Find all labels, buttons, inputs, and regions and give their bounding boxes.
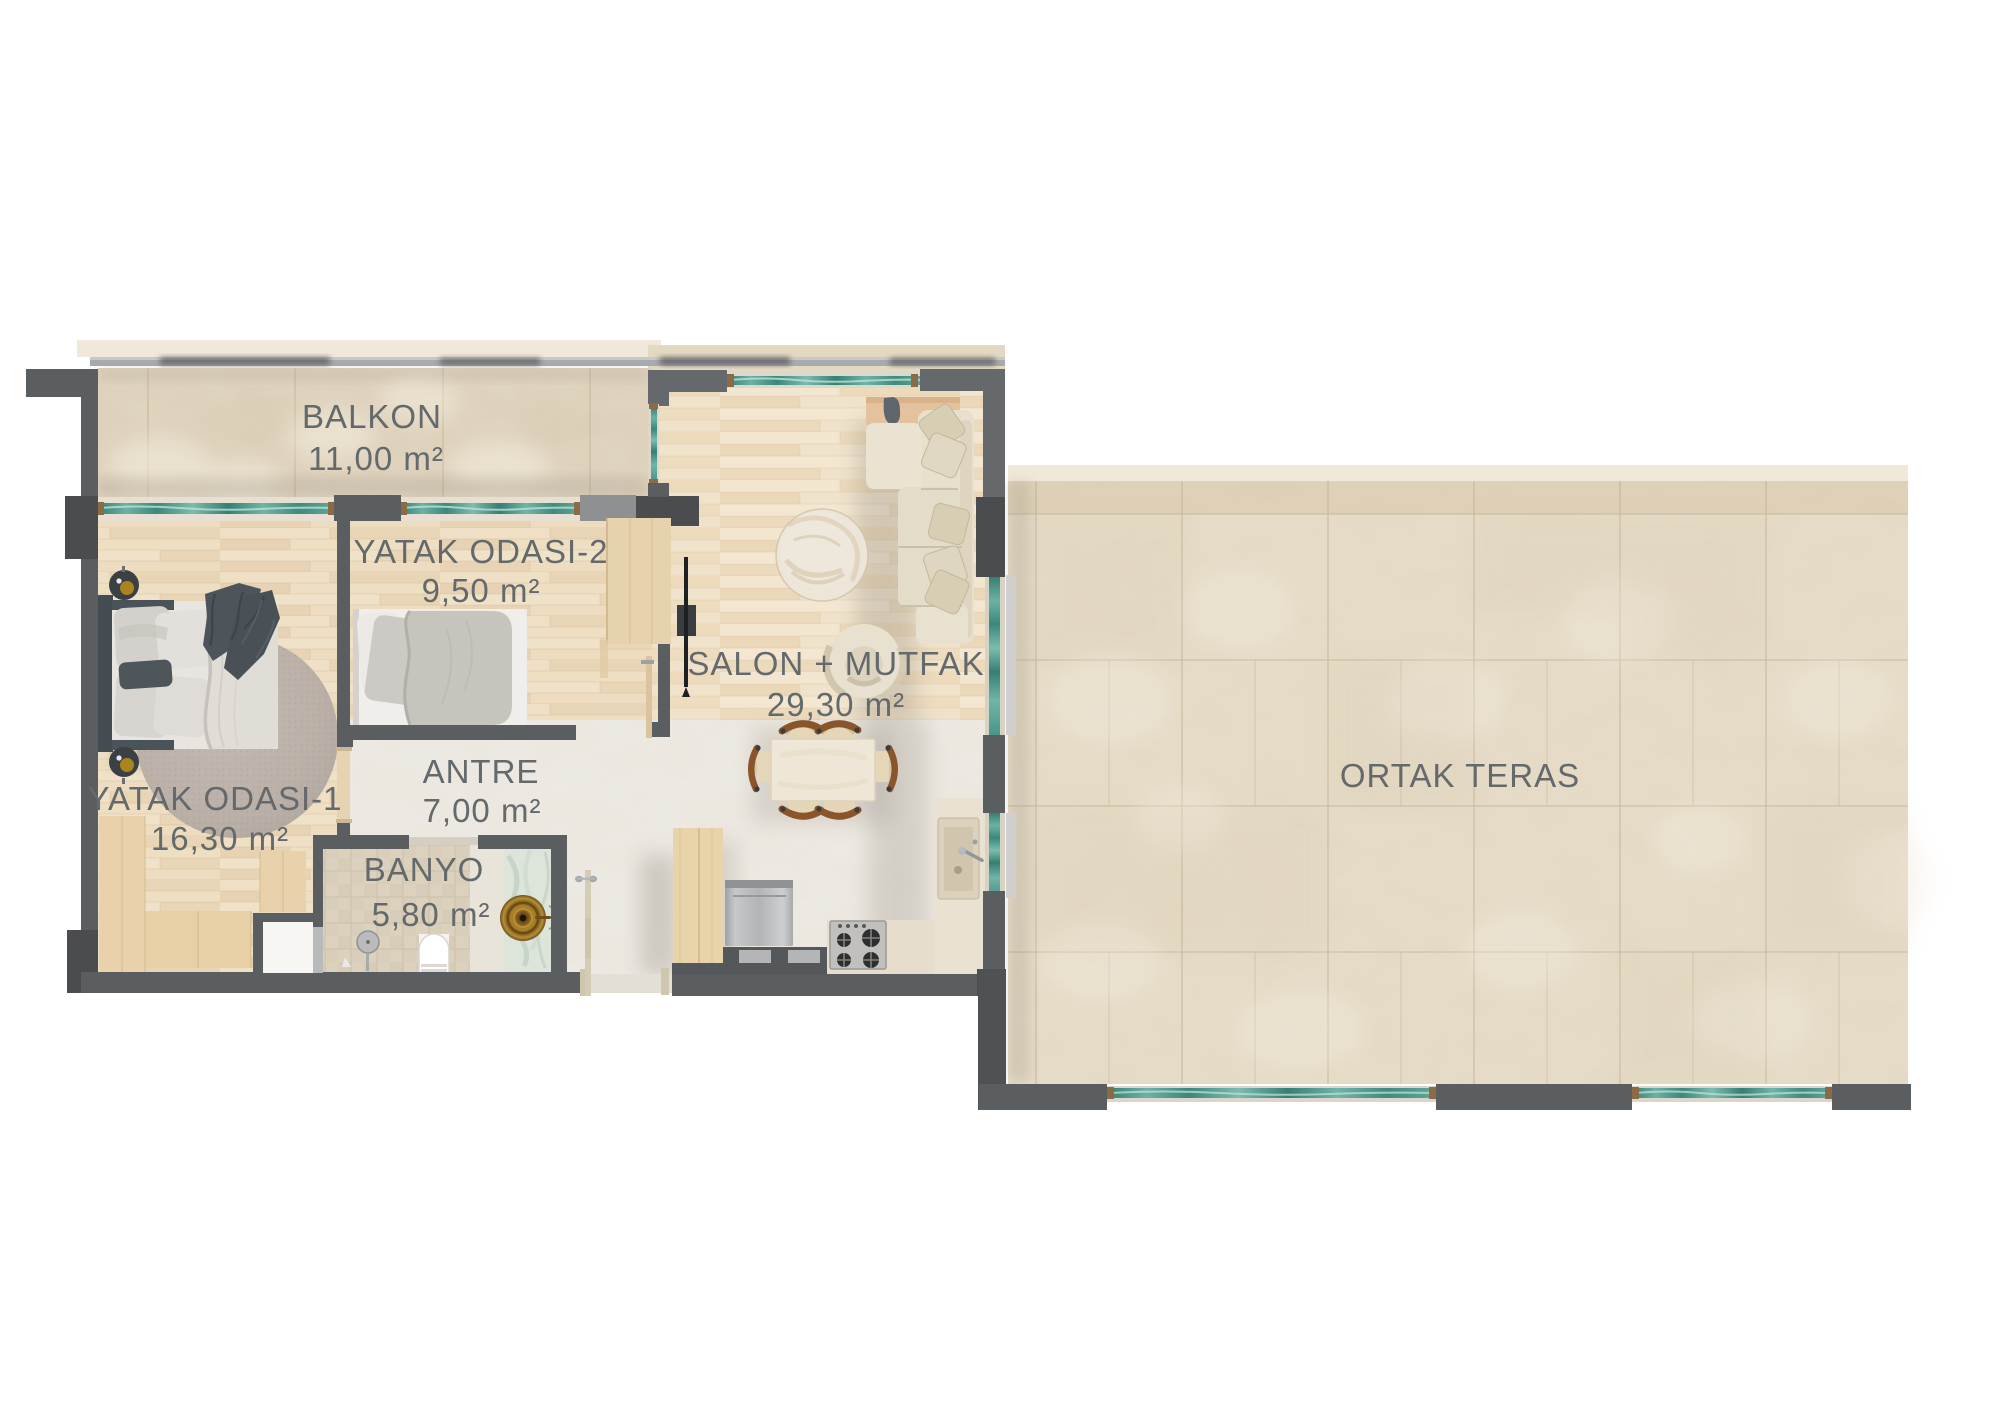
svg-text:YATAK ODASI-1: YATAK ODASI-1 [87,780,342,817]
svg-text:9,50 m²: 9,50 m² [422,572,541,609]
svg-text:ANTRE: ANTRE [423,753,540,790]
svg-text:BANYO: BANYO [364,851,485,888]
svg-text:11,00 m²: 11,00 m² [308,440,444,477]
svg-text:SALON + MUTFAK: SALON + MUTFAK [687,645,984,682]
svg-text:BALKON: BALKON [302,398,442,435]
svg-text:7,00 m²: 7,00 m² [423,792,542,829]
svg-text:5,80 m²: 5,80 m² [372,896,491,933]
svg-text:16,30 m²: 16,30 m² [151,820,289,857]
svg-text:29,30 m²: 29,30 m² [767,686,905,723]
svg-text:YATAK ODASI-2: YATAK ODASI-2 [353,533,608,570]
svg-text:ORTAK TERAS: ORTAK TERAS [1340,757,1580,794]
